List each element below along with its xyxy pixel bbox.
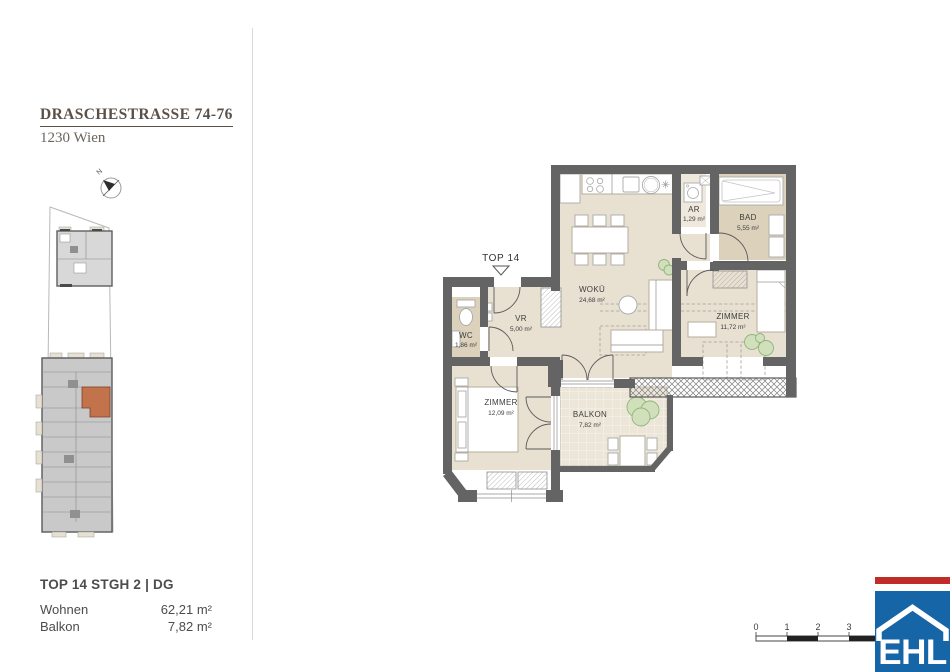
company-logo: EHL [875, 591, 950, 672]
project-street: DRASCHESTRASSE 74-76 [40, 106, 233, 127]
unit-info-value: 7,82 m² [168, 618, 212, 635]
boiler-icon [700, 176, 711, 185]
washing-machine-icon [684, 183, 702, 202]
site-plan: N [30, 160, 130, 545]
room-label-bad: BAD [739, 213, 756, 222]
logo-text: EHL [878, 633, 947, 672]
site-building-upper [57, 227, 112, 287]
compass-north-label: N [96, 168, 104, 177]
room-label-vr: VR [515, 314, 527, 323]
unit-info-block: TOP 14 STGH 2 | DG Wohnen 62,21 m² Balko… [40, 577, 212, 635]
scale-bar: 0 1 2 3 [748, 615, 880, 647]
scale-label-0: 0 [753, 622, 758, 632]
room-area-zimmer1: 11,72 m² [720, 324, 746, 331]
french-door-bedroom2-balcony [551, 396, 560, 450]
room-area-woku: 24,68 m² [579, 297, 605, 304]
sidebar-divider [252, 28, 253, 640]
vr-wardrobe [541, 288, 561, 327]
floorplan-page: DRASCHESTRASSE 74-76 1230 Wien N [0, 0, 950, 672]
wall-niche [560, 174, 580, 203]
dining-set [572, 215, 628, 265]
room-label-zimmer1: ZIMMER [716, 312, 749, 321]
project-city: 1230 Wien [40, 130, 233, 147]
kitchen-counter [582, 174, 677, 194]
french-door-woku-balcony [561, 378, 614, 387]
unit-info-label: Balkon [40, 618, 80, 635]
unit-marker-label: TOP 14 [482, 253, 520, 264]
room-label-woku: WOKÜ [579, 285, 605, 294]
room-label-zimmer2: ZIMMER [484, 398, 517, 407]
scale-label-3: 3 [846, 622, 851, 632]
unit-info-row-balkon: Balkon 7,82 m² [40, 618, 212, 635]
scale-label-1: 1 [784, 622, 789, 632]
unit-info-label: Wohnen [40, 601, 88, 618]
terrace-hatch [630, 378, 796, 397]
site-building-lower [36, 353, 112, 537]
scale-label-2: 2 [815, 622, 820, 632]
room-area-zimmer2: 12,09 m² [488, 410, 514, 417]
room-label-balkon: BALKON [573, 410, 607, 419]
unit-entrance-marker: TOP 14 [482, 253, 520, 275]
room-area-ar: 1,29 m² [683, 216, 706, 223]
compass-icon: N [96, 168, 121, 198]
room-area-balkon: 7,82 m² [579, 422, 602, 429]
unit-info-value: 62,21 m² [161, 601, 212, 618]
coffee-table [619, 296, 637, 314]
bathtub-icon [719, 177, 783, 205]
entrance-opening [494, 277, 521, 287]
unit-info-title: TOP 14 STGH 2 | DG [40, 577, 212, 592]
floor-plan: TOP 14 WOKÜ 24,68 m² AR 1,29 m² BAD 5,55… [438, 158, 806, 512]
room-area-wc: 1,86 m² [455, 342, 478, 349]
project-title-block: DRASCHESTRASSE 74-76 1230 Wien [40, 106, 233, 147]
unit-info-row-wohnen: Wohnen 62,21 m² [40, 601, 212, 618]
room-label-wc: WC [459, 331, 473, 340]
room-area-vr: 5,00 m² [510, 326, 533, 333]
room-area-bad: 5,55 m² [737, 225, 760, 232]
logo-red-bar [875, 577, 950, 584]
room-label-ar: AR [688, 205, 700, 214]
window-bedroom2-south [477, 490, 546, 502]
